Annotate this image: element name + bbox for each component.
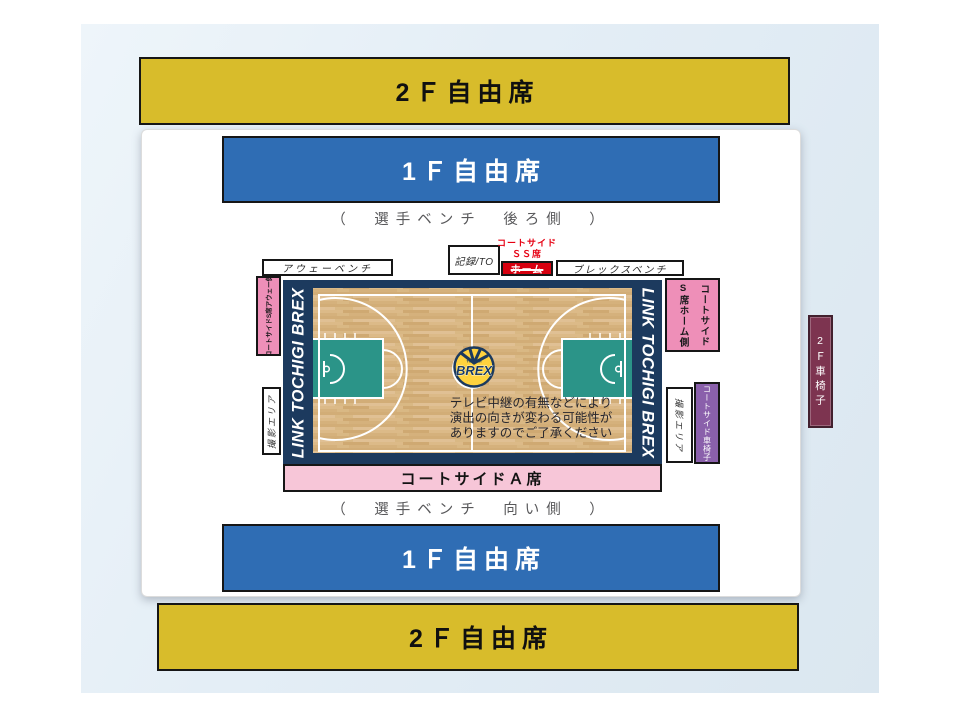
notice-line3: ありますのでご了承ください: [450, 425, 613, 440]
stand-2f-free-top-label: 2Ｆ自由席: [390, 73, 540, 109]
court-diagram: LINK TOCHIGI BREX LINK TOCHIGI BREX TOCH…: [283, 280, 662, 466]
wheelchair-2f-box: 2Ｆ車椅子: [808, 315, 833, 428]
court-brand-left: LINK TOCHIGI BREX: [289, 287, 307, 458]
wheelchair-2f-label: 2Ｆ車椅子: [813, 335, 828, 409]
notice-line2: 演出の向きが変わる可能性が: [450, 410, 613, 425]
photo-area-left-box: 撮影エリア: [262, 387, 281, 455]
stand-2f-free-bottom-label: 2Ｆ自由席: [403, 619, 553, 655]
courtside-s-away-box: コートサイドS席アウェー側: [256, 276, 281, 356]
stand-1f-free-bottom: 1Ｆ自由席: [222, 524, 720, 592]
courtside-ss-home-label: ホーム: [511, 261, 544, 276]
courtside-s-home-box: コートサイド S席ホーム側: [665, 278, 720, 352]
stand-2f-free-bottom: 2Ｆ自由席: [157, 603, 799, 671]
stand-1f-free-top-label: 1Ｆ自由席: [396, 152, 546, 188]
courtside-wheelchair-label: コートサイド車椅子: [702, 385, 713, 462]
away-bench-label: アウェーベンチ: [282, 260, 373, 275]
courtside-ss-label: コートサイド ＳＳ席: [494, 238, 560, 259]
courtside-a-banner: コートサイドＡ席: [283, 464, 662, 492]
stand-1f-free-top: 1Ｆ自由席: [222, 136, 720, 203]
notice-line1: テレビ中継の有無などにより: [450, 395, 612, 410]
courtside-wheelchair-box: コートサイド車椅子: [694, 382, 720, 464]
brex-bench-box: ブレックスベンチ: [556, 260, 684, 276]
brex-bench-label: ブレックスベンチ: [573, 261, 668, 276]
photo-area-left-label: 撮影エリア: [265, 393, 278, 448]
courtside-ss-label-line2: ＳＳ席: [494, 249, 560, 260]
courtside-s-away-label: コートサイドS席アウェー側: [264, 276, 274, 356]
stand-2f-free-top: 2Ｆ自由席: [139, 57, 790, 125]
photo-area-right-box: 撮影エリア: [666, 387, 693, 463]
brex-logo-main-text: BREX: [456, 363, 493, 378]
court-brand-right: LINK TOCHIGI BREX: [639, 288, 657, 459]
bench-note-front: （ 選手ベンチ 向い側 ）: [141, 498, 801, 519]
stand-1f-free-bottom-label: 1Ｆ自由席: [396, 540, 546, 576]
courtside-s-home-label: コートサイド S席ホーム側: [672, 283, 714, 348]
bench-note-back: （ 選手ベンチ 後ろ側 ）: [141, 208, 801, 229]
record-to-label: 記録/TO: [455, 253, 494, 268]
photo-area-right-label: 撮影エリア: [673, 397, 686, 452]
courtside-a-label: コートサイドＡ席: [400, 468, 544, 489]
courtside-ss-home-box: ホーム: [501, 261, 553, 276]
notice-text: テレビ中継の有無などにより 演出の向きが変わる可能性が ありますのでご了承くださ…: [450, 395, 613, 440]
brex-logo: TOCHIGI BREX: [455, 348, 494, 387]
courtside-ss-label-line1: コートサイド: [494, 238, 560, 249]
away-bench-box: アウェーベンチ: [262, 259, 393, 276]
record-to-box: 記録/TO: [448, 245, 500, 275]
